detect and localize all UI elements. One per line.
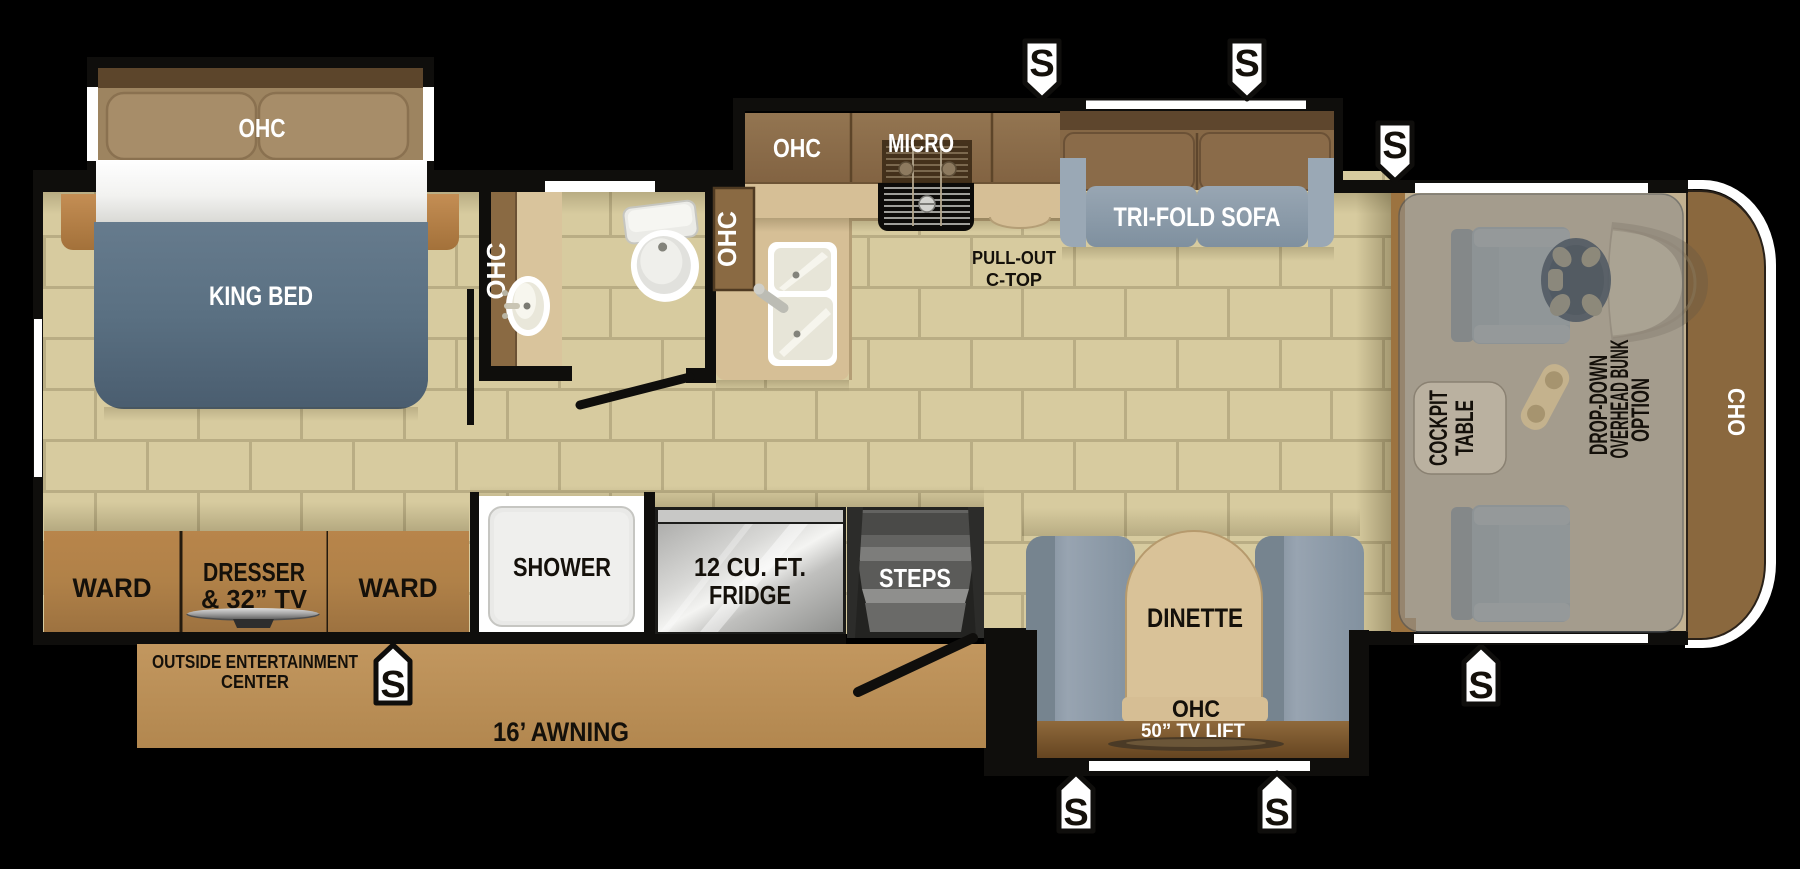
- svg-text:PULL-OUT: PULL-OUT: [972, 248, 1056, 268]
- svg-text:S: S: [380, 664, 405, 706]
- svg-text:OHC: OHC: [712, 211, 742, 267]
- svg-text:S: S: [1468, 665, 1493, 707]
- svg-text:TRI-FOLD SOFA: TRI-FOLD SOFA: [1114, 202, 1281, 232]
- svg-text:C-TOP: C-TOP: [986, 270, 1042, 290]
- svg-text:KING BED: KING BED: [209, 281, 313, 311]
- svg-text:50” TV LIFT: 50” TV LIFT: [1141, 721, 1245, 742]
- svg-text:S: S: [1234, 43, 1259, 85]
- svg-text:MICRO: MICRO: [888, 128, 954, 158]
- svg-text:FRIDGE: FRIDGE: [709, 580, 791, 610]
- svg-text:STEPS: STEPS: [879, 563, 951, 593]
- svg-text:12 CU. FT.: 12 CU. FT.: [694, 552, 806, 582]
- svg-text:S: S: [1264, 792, 1289, 834]
- svg-text:S: S: [1063, 792, 1088, 834]
- svg-text:OHC: OHC: [1172, 696, 1220, 723]
- svg-text:DINETTE: DINETTE: [1147, 603, 1243, 633]
- svg-text:WARD: WARD: [359, 573, 438, 603]
- svg-text:WARD: WARD: [73, 573, 152, 603]
- svg-text:OUTSIDE ENTERTAINMENT: OUTSIDE ENTERTAINMENT: [152, 652, 358, 672]
- svg-text:DRESSER: DRESSER: [203, 557, 305, 587]
- svg-text:OHC: OHC: [239, 113, 286, 143]
- svg-text:CENTER: CENTER: [221, 672, 289, 692]
- svg-text:OHC: OHC: [773, 133, 821, 163]
- svg-text:COCKPIT: COCKPIT: [1425, 390, 1453, 466]
- svg-text:S: S: [1029, 43, 1054, 85]
- svg-text:TABLE: TABLE: [1451, 400, 1479, 456]
- svg-text:S: S: [1382, 125, 1407, 167]
- svg-text:16’ AWNING: 16’ AWNING: [493, 717, 629, 747]
- svg-text:SHOWER: SHOWER: [513, 552, 611, 582]
- svg-text:OPTION: OPTION: [1627, 378, 1655, 442]
- svg-text:CHO: CHO: [1722, 388, 1749, 436]
